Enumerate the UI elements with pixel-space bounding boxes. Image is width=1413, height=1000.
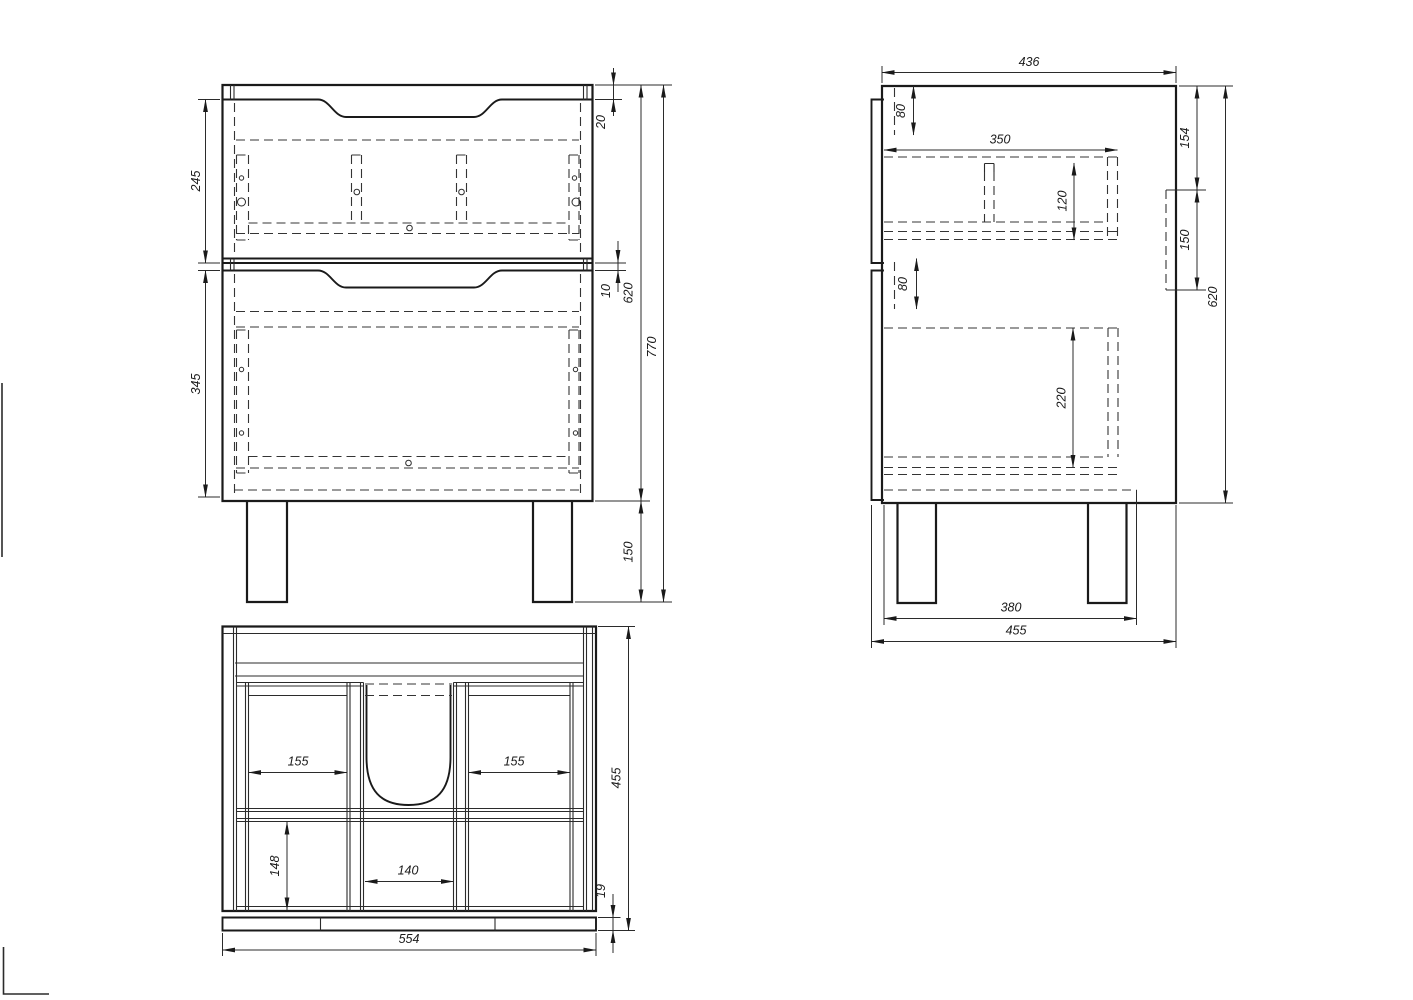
dim-label-leg-span: 380	[1001, 601, 1022, 615]
hole	[239, 431, 243, 435]
top-sink-cutout	[367, 686, 451, 805]
dim-label-body-height-front: 620	[622, 283, 636, 304]
hole	[239, 176, 243, 180]
dim-label-back-bay-depth: 148	[268, 856, 282, 877]
dim-label-drawer1-front-height: 245	[189, 171, 203, 193]
extension-lines	[872, 66, 1234, 648]
frame-corner-mark	[4, 947, 50, 994]
dim-label-total-depth-side: 455	[1006, 624, 1027, 638]
extension-lines	[198, 85, 672, 602]
dim-label-drawer-box-depth: 350	[990, 133, 1011, 147]
front-view: 245 345 20 10 620 770 150	[189, 68, 672, 602]
drawing-sheet: 245 345 20 10 620 770 150 436	[0, 0, 1413, 1000]
technical-drawing: 245 345 20 10 620 770 150 436	[0, 0, 1413, 1000]
side-thin-lines	[985, 164, 1207, 291]
top-view: 155 155 148 140 455 19 554	[223, 627, 636, 957]
dim-label-leg-height: 150	[622, 542, 636, 563]
dim-label-total-width: 554	[399, 932, 420, 946]
dim-label-center-bay-width: 140	[398, 864, 419, 878]
front-dimensions: 245 345 20 10 620 770 150	[189, 68, 672, 602]
top-plinth-strip	[223, 918, 597, 931]
hole	[354, 189, 360, 195]
side-view: 436 80 350 120 154 150 80 220 620 380 45…	[872, 55, 1234, 648]
side-hidden-lines	[884, 88, 1166, 490]
hole	[239, 367, 243, 371]
dim-label-hanger-height: 150	[1178, 230, 1192, 251]
dim-label-drawer1-box-height: 120	[1056, 191, 1070, 212]
hole	[573, 431, 577, 435]
hole	[407, 225, 413, 231]
dim-label-right-bay-width: 155	[504, 755, 525, 769]
front-wall-edge-lines	[231, 85, 588, 271]
dim-label-plinth-height: 19	[594, 884, 608, 898]
hole	[459, 189, 465, 195]
dim-label-bottom-front-offset: 80	[896, 277, 910, 291]
dim-label-total-height: 770	[645, 337, 659, 358]
dim-label-body-height-side: 620	[1206, 287, 1220, 308]
sheet-frame-marks	[2, 383, 49, 994]
front-hidden-lines	[234, 103, 581, 497]
hole	[572, 176, 576, 180]
top-thin-lines	[223, 627, 597, 931]
front-drawer-front-edges	[223, 100, 593, 288]
dim-label-front-gap: 10	[599, 284, 613, 298]
hole	[238, 198, 246, 206]
dim-label-left-bay-width: 155	[288, 755, 309, 769]
dim-label-drawer2-box-height: 220	[1055, 388, 1069, 410]
hole	[573, 367, 577, 371]
front-fitting-holes	[238, 176, 581, 466]
side-dimensions: 436 80 350 120 154 150 80 220 620 380 45…	[872, 55, 1234, 648]
dim-label-top-rail: 20	[594, 115, 608, 130]
dim-label-drawer2-front-height: 345	[189, 374, 203, 395]
dim-label-hanger-top-offset: 154	[1178, 128, 1192, 149]
side-body-outline	[882, 86, 1176, 603]
front-cabinet-outline	[223, 85, 593, 602]
dim-label-body-depth: 436	[1019, 55, 1040, 69]
dim-label-total-depth-top: 455	[610, 768, 624, 789]
top-hidden-lines	[365, 684, 452, 696]
dim-label-top-front-offset: 80	[894, 104, 908, 118]
hole	[406, 460, 412, 466]
